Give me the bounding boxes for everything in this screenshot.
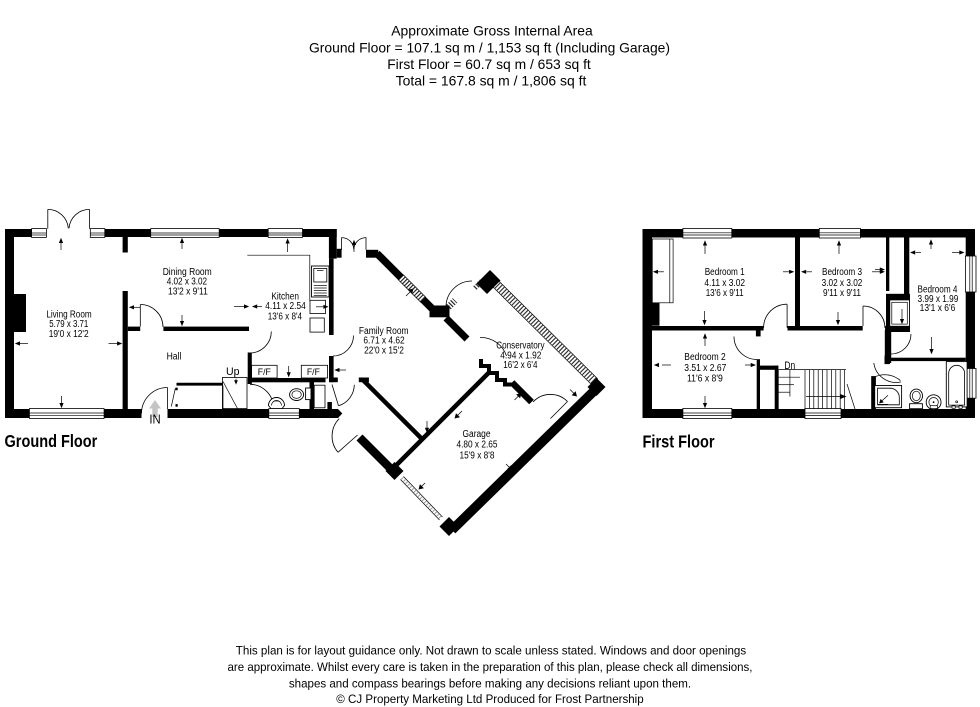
svg-text:9'11 x 9'11: 9'11 x 9'11 bbox=[823, 288, 861, 299]
svg-text:Hall: Hall bbox=[167, 352, 182, 363]
svg-text:Ground Floor: Ground Floor bbox=[5, 431, 98, 451]
svg-text:3.51 x 2.67: 3.51 x 2.67 bbox=[684, 363, 726, 374]
svg-text:Ground Floor = 107.1 sq m / 1,: Ground Floor = 107.1 sq m / 1,153 sq ft … bbox=[309, 40, 670, 56]
svg-text:13'6 x 8'4: 13'6 x 8'4 bbox=[268, 311, 303, 322]
svg-text:First Floor = 60.7 sq m / 653: First Floor = 60.7 sq m / 653 sq ft bbox=[387, 56, 591, 72]
svg-text:13'6 x 9'11: 13'6 x 9'11 bbox=[706, 288, 744, 299]
svg-text:Total = 167.8 sq m / 1,806 sq: Total = 167.8 sq m / 1,806 sq ft bbox=[396, 73, 587, 89]
svg-text:Bedroom 3: Bedroom 3 bbox=[822, 267, 862, 278]
svg-text:Garage: Garage bbox=[463, 429, 491, 440]
svg-text:F/F: F/F bbox=[258, 367, 271, 378]
svg-text:15'9 x 8'8: 15'9 x 8'8 bbox=[460, 451, 495, 462]
svg-text:Up: Up bbox=[226, 366, 240, 378]
svg-text:are approximate. Whilst every: are approximate. Whilst every care is ta… bbox=[228, 660, 753, 674]
svg-text:shapes and compass bearings be: shapes and compass bearings before makin… bbox=[289, 676, 691, 690]
svg-text:Dn: Dn bbox=[784, 360, 795, 372]
svg-text:13'2 x 9'11: 13'2 x 9'11 bbox=[168, 287, 208, 298]
svg-text:F/F: F/F bbox=[307, 367, 320, 378]
svg-text:First Floor: First Floor bbox=[643, 432, 715, 452]
svg-text:IN: IN bbox=[149, 411, 160, 426]
svg-text:© CJ Property Marketing Ltd Pr: © CJ Property Marketing Ltd Produced for… bbox=[336, 692, 644, 706]
svg-text:4.80 x 2.65: 4.80 x 2.65 bbox=[457, 440, 498, 451]
svg-text:11'6 x 8'9: 11'6 x 8'9 bbox=[687, 374, 723, 385]
svg-text:19'0 x 12'2: 19'0 x 12'2 bbox=[49, 329, 89, 340]
svg-text:Bedroom 2: Bedroom 2 bbox=[684, 352, 726, 363]
svg-text:Approximate Gross Internal Are: Approximate Gross Internal Area bbox=[391, 23, 593, 39]
svg-text:16'2 x 6'4: 16'2 x 6'4 bbox=[503, 360, 538, 371]
svg-text:Bedroom 1: Bedroom 1 bbox=[705, 267, 745, 278]
svg-text:13'1 x 6'6: 13'1 x 6'6 bbox=[920, 303, 956, 314]
svg-text:22'0 x 15'2: 22'0 x 15'2 bbox=[364, 346, 404, 357]
svg-text:This plan is for layout guidan: This plan is for layout guidance only. N… bbox=[236, 644, 746, 658]
